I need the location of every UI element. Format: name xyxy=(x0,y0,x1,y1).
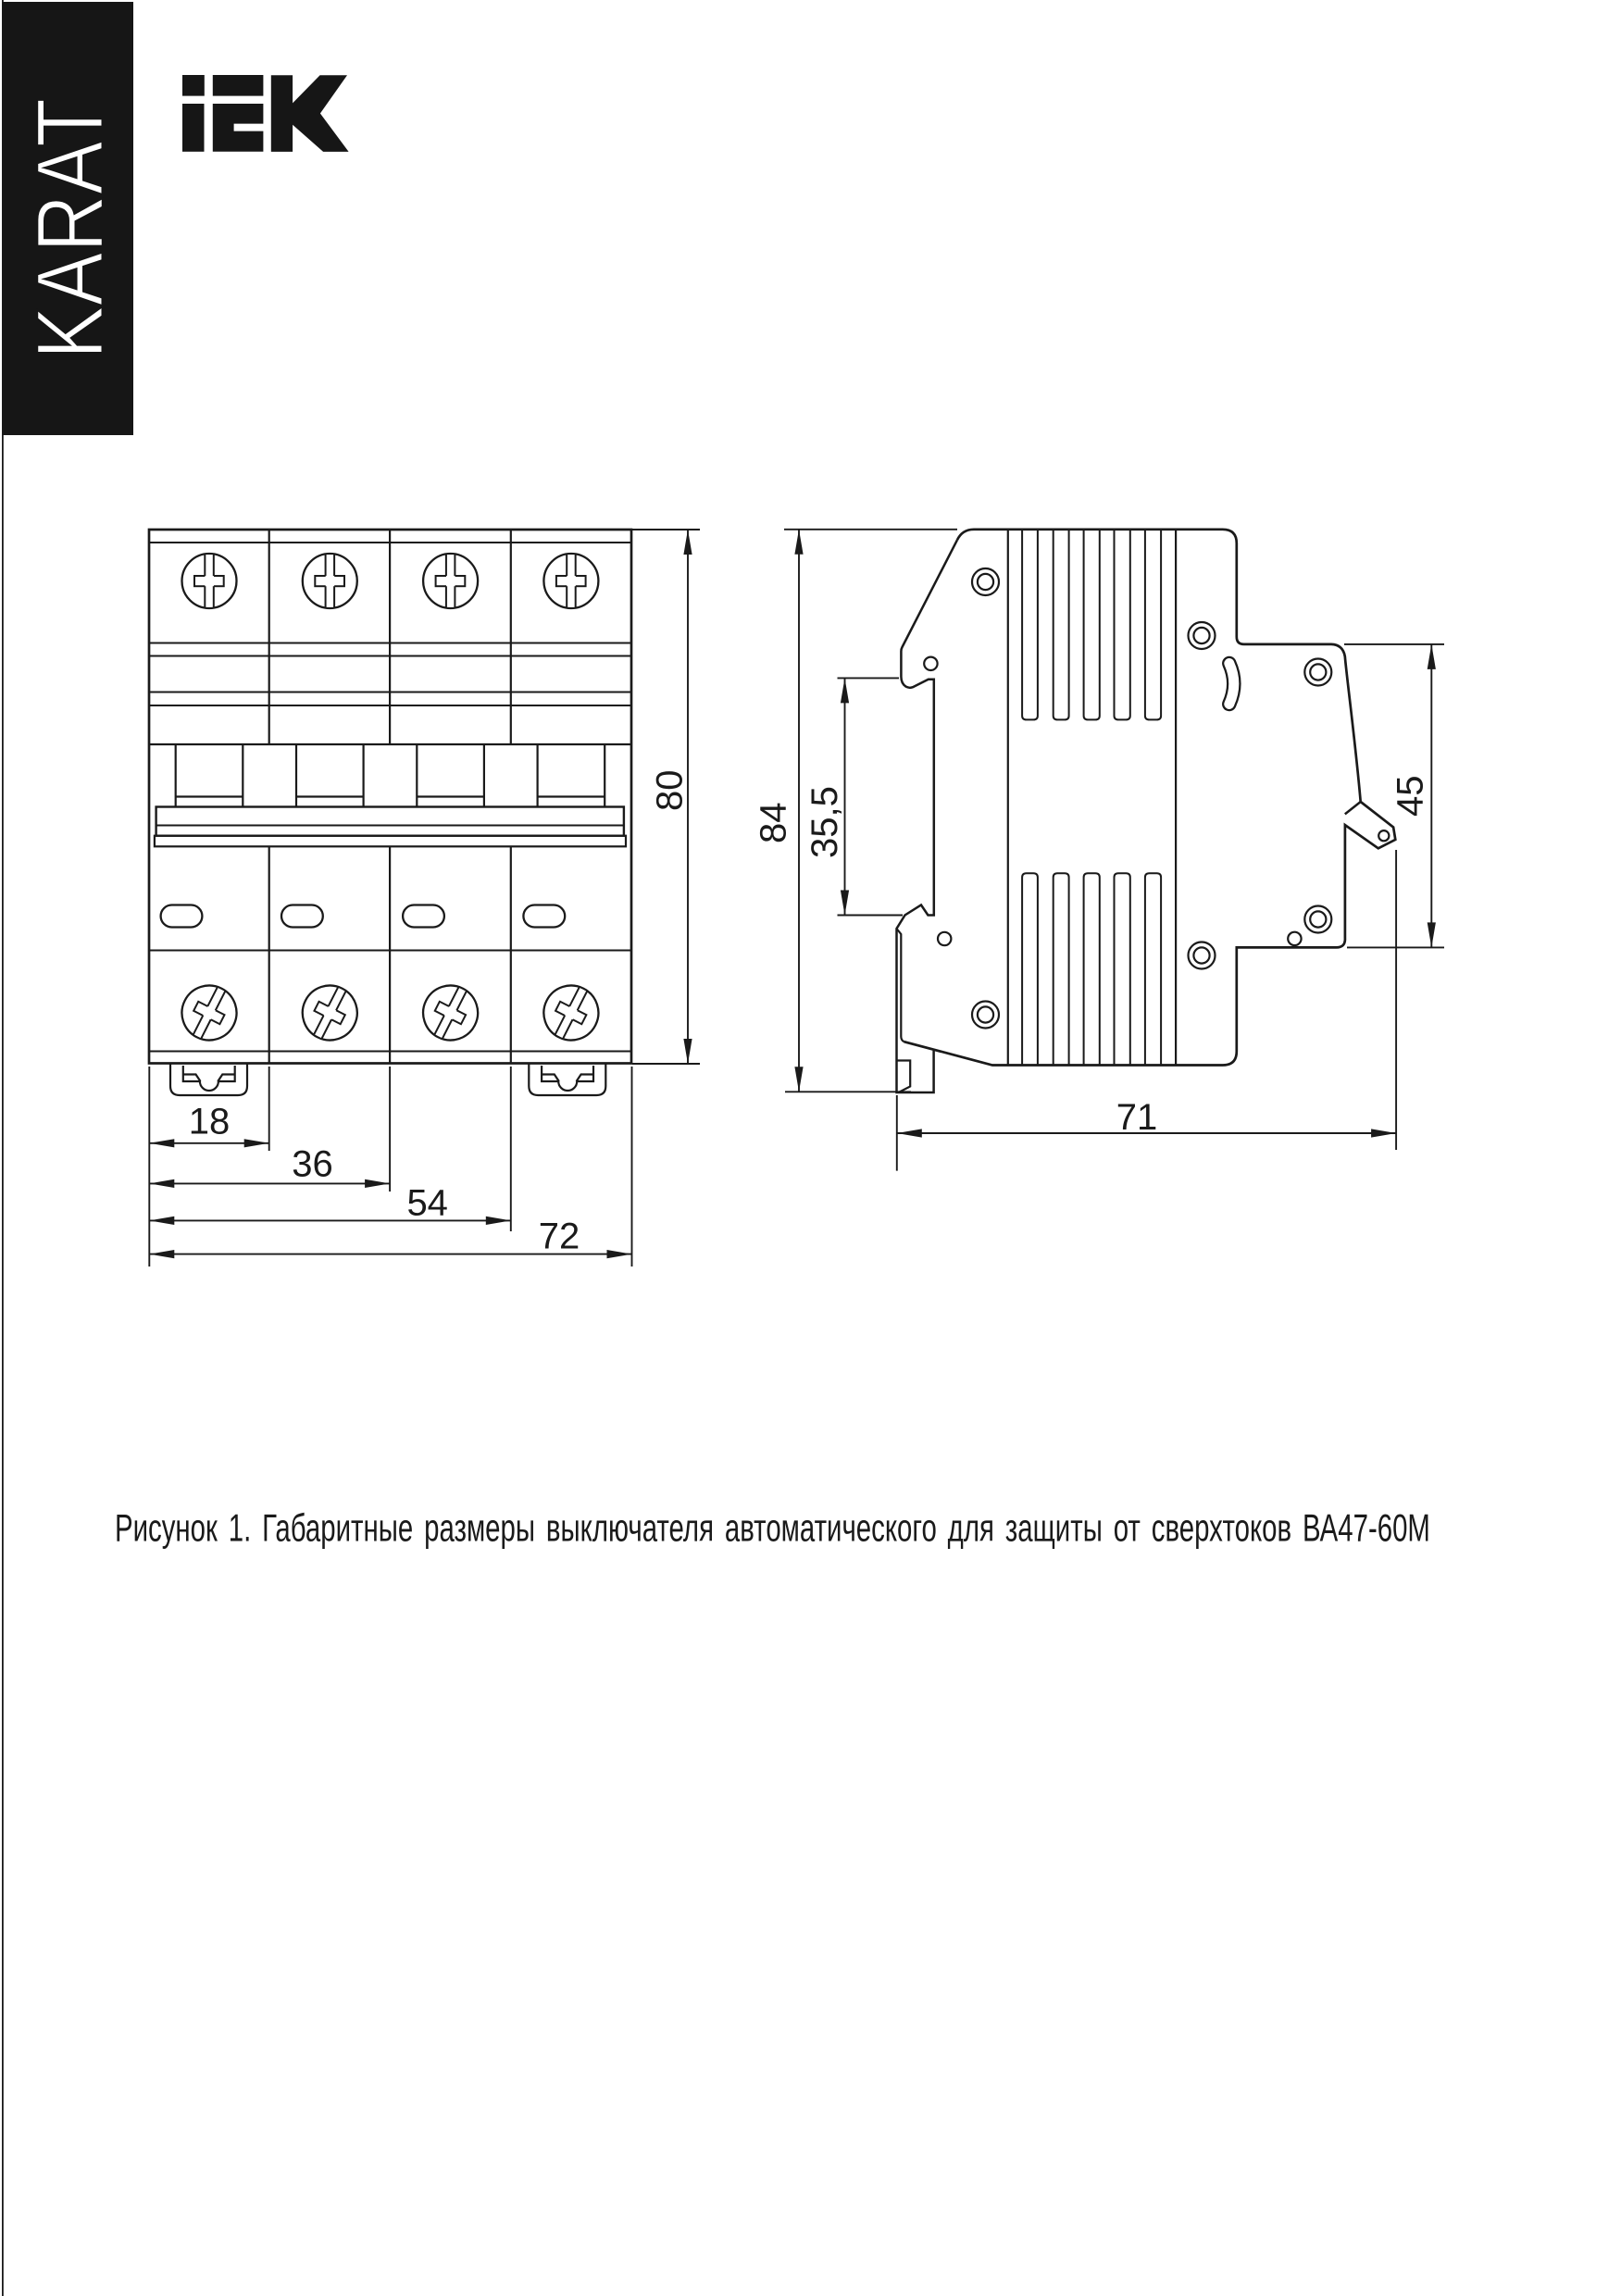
svg-text:35,5: 35,5 xyxy=(804,786,845,858)
svg-text:KARAT: KARAT xyxy=(18,98,123,359)
svg-text:72: 72 xyxy=(539,1217,580,1257)
svg-text:36: 36 xyxy=(292,1143,333,1184)
svg-text:54: 54 xyxy=(406,1182,448,1223)
svg-text:71: 71 xyxy=(1116,1097,1158,1138)
svg-text:84: 84 xyxy=(754,803,794,844)
svg-text:80: 80 xyxy=(650,770,691,812)
svg-text:45: 45 xyxy=(1390,776,1431,817)
svg-text:18: 18 xyxy=(189,1101,231,1142)
svg-text:Рисунок 1. Габаритные размеры: Рисунок 1. Габаритные размеры выключател… xyxy=(115,1505,1430,1550)
